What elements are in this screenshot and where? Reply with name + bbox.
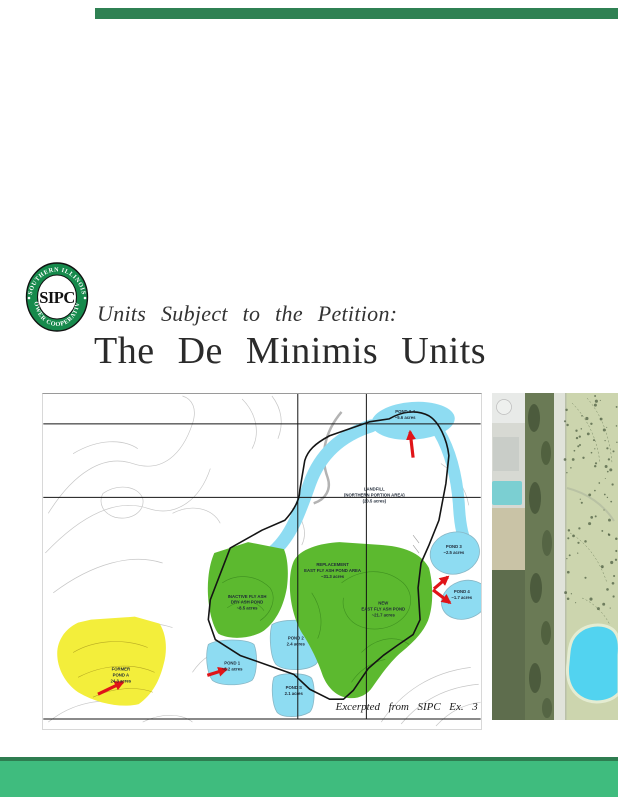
svg-text:~5.6 acres: ~5.6 acres xyxy=(395,415,416,420)
industrial-pond xyxy=(492,481,522,505)
top-accent-bar xyxy=(95,8,618,19)
svg-text:POND 4: POND 4 xyxy=(454,589,471,594)
yellow-unit xyxy=(57,617,166,706)
svg-text:POND 3: POND 3 xyxy=(446,544,463,549)
logo-acronym: SIPC xyxy=(39,288,75,307)
aerial-road xyxy=(554,393,565,720)
arrow-pond-3-icon xyxy=(434,577,448,589)
svg-text:(20.5 acres): (20.5 acres) xyxy=(363,498,387,503)
aerial-photo-image xyxy=(492,393,618,720)
svg-text:LANDFILL: LANDFILL xyxy=(364,486,385,491)
sipc-logo-seal: SOUTHERN ILLINOIS POWER COOPERATIVE SIPC xyxy=(25,261,89,333)
map-source-credit: Excerpted from SIPC Ex. 3 xyxy=(335,701,479,713)
page-title: The De Minimis Units xyxy=(94,329,614,373)
svg-text:~2.5 acres: ~2.5 acres xyxy=(443,550,464,555)
footer-band xyxy=(0,761,618,797)
sipc-seal-icon: SOUTHERN ILLINOIS POWER COOPERATIVE SIPC xyxy=(25,261,89,333)
storage-tank xyxy=(497,400,512,415)
svg-text:EAST FLY ASH POND AREA: EAST FLY ASH POND AREA xyxy=(304,568,361,573)
svg-text:~31.3 acres: ~31.3 acres xyxy=(321,574,345,579)
site-map-figure: POND 3-4 ~5.6 acres LANDFILL (NORTHERN P… xyxy=(42,393,482,730)
svg-text:~8.5 acres: ~8.5 acres xyxy=(237,606,258,611)
aerial-industrial-area xyxy=(492,393,525,720)
yellow-unit-former-pond-a xyxy=(57,617,166,706)
svg-text:POND S: POND S xyxy=(286,685,303,690)
svg-text:FORMER: FORMER xyxy=(112,666,130,671)
svg-text:POND 1: POND 1 xyxy=(224,660,241,665)
svg-text:24.3 acres: 24.3 acres xyxy=(111,678,132,683)
svg-text:DRY ASH POND: DRY ASH POND xyxy=(231,600,263,605)
svg-text:(NORTHERN PORTION AREA): (NORTHERN PORTION AREA) xyxy=(344,492,405,497)
svg-text:POND A: POND A xyxy=(113,672,129,677)
svg-text:~1.7 acres: ~1.7 acres xyxy=(451,595,472,600)
svg-text:POND 2: POND 2 xyxy=(288,636,305,641)
aerial-pond xyxy=(568,625,618,702)
svg-text:INACTIVE FLY ASH: INACTIVE FLY ASH xyxy=(228,594,267,599)
svg-text:~8.2 acres: ~8.2 acres xyxy=(222,666,243,671)
svg-text:EAST FLY ASH POND: EAST FLY ASH POND xyxy=(361,607,405,612)
svg-text:2.1 acres: 2.1 acres xyxy=(285,691,304,696)
svg-text:POND 3-4: POND 3-4 xyxy=(395,409,415,414)
svg-text:2.4 acres: 2.4 acres xyxy=(287,641,306,646)
aerial-tree-line xyxy=(525,393,555,720)
aerial-photo xyxy=(492,393,618,720)
green-unit-east xyxy=(290,542,432,698)
svg-text:~21.7 acres: ~21.7 acres xyxy=(372,613,396,618)
slide: { "header": { "subtitle": "Units Subject… xyxy=(0,0,618,800)
water-channel xyxy=(274,426,371,551)
svg-text:REPLACEMENT: REPLACEMENT xyxy=(316,562,349,567)
slide-subtitle: Units Subject to the Petition: xyxy=(97,301,577,327)
svg-text:NEW: NEW xyxy=(378,601,389,606)
site-map: POND 3-4 ~5.6 acres LANDFILL (NORTHERN P… xyxy=(43,394,481,729)
